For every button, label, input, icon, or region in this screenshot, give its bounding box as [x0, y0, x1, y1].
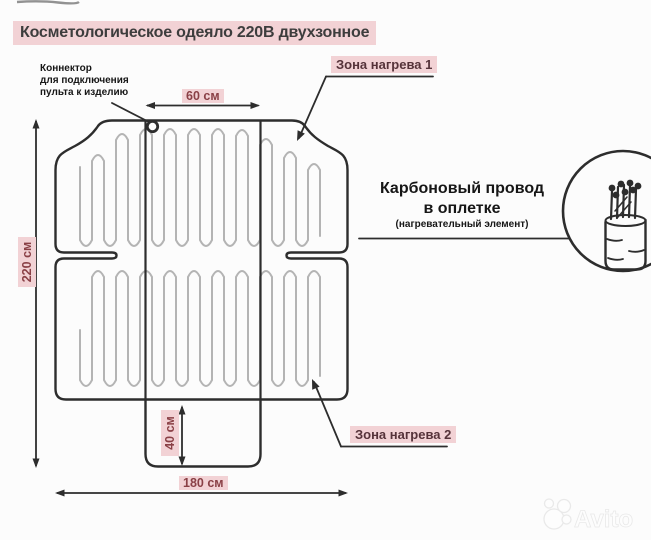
connector-label: Коннектор для подключения пульта к издел… [40, 63, 129, 99]
cable-strand [611, 191, 612, 219]
connector-port [147, 121, 157, 131]
dim-label-220: 220 см [18, 237, 36, 287]
connector-label-line3: пульта к изделию [40, 87, 129, 99]
cable-inset [563, 151, 651, 271]
arrowhead [146, 102, 156, 109]
arrowhead [251, 102, 261, 109]
page-title: Косметологическое одеяло 220В двухзонное [13, 21, 376, 45]
avito-logo-circle [558, 500, 571, 513]
cable-label-line2: в оплетке [376, 199, 548, 218]
arrowhead [179, 457, 186, 467]
avito-logo-circle [545, 499, 554, 508]
blanket-outline [56, 121, 348, 467]
connector-label-line1: Коннектор [40, 63, 129, 75]
arrowhead [308, 377, 319, 389]
heating-wire-zone2 [80, 271, 320, 386]
arrowhead [55, 490, 65, 497]
arrowhead [33, 119, 40, 129]
cable-label: Карбоновый провод в оплетке (нагреватель… [376, 179, 548, 231]
dim-label-60: 60 см [182, 89, 224, 103]
cable-label-line3: (нагревательный элемент) [376, 218, 548, 231]
arrowhead [339, 490, 349, 497]
connector-pointer [112, 103, 148, 122]
dim-label-180: 180 см [179, 476, 228, 490]
avito-watermark: Avito [544, 499, 633, 533]
arrowhead [33, 459, 40, 469]
arrowhead [179, 405, 186, 415]
cable-strand [617, 187, 618, 218]
cable-label-line1: Карбоновый провод [376, 179, 548, 199]
arrowhead [293, 130, 304, 142]
zone1-label: Зона нагрева 1 [331, 56, 437, 73]
zone1-pointer [299, 77, 326, 139]
scan-artifact [17, 1, 79, 3]
dim-label-40: 40 см [161, 410, 179, 456]
diagram-page: Avito Косметологическое одеяло 220В двух… [0, 0, 651, 540]
cable-strand [635, 189, 636, 218]
inset-circle [563, 151, 651, 271]
dimension-arrows [33, 102, 349, 497]
heating-wire-zone1 [80, 129, 320, 246]
connector-label-line2: для подключения [40, 75, 129, 87]
avito-logo-circle [562, 515, 571, 524]
avito-watermark-text: Avito [574, 506, 633, 533]
zone2-label: Зона нагрева 2 [350, 426, 456, 443]
blanket-body [56, 121, 348, 400]
zone2-pointer [314, 382, 341, 447]
callout-lines [112, 77, 569, 447]
